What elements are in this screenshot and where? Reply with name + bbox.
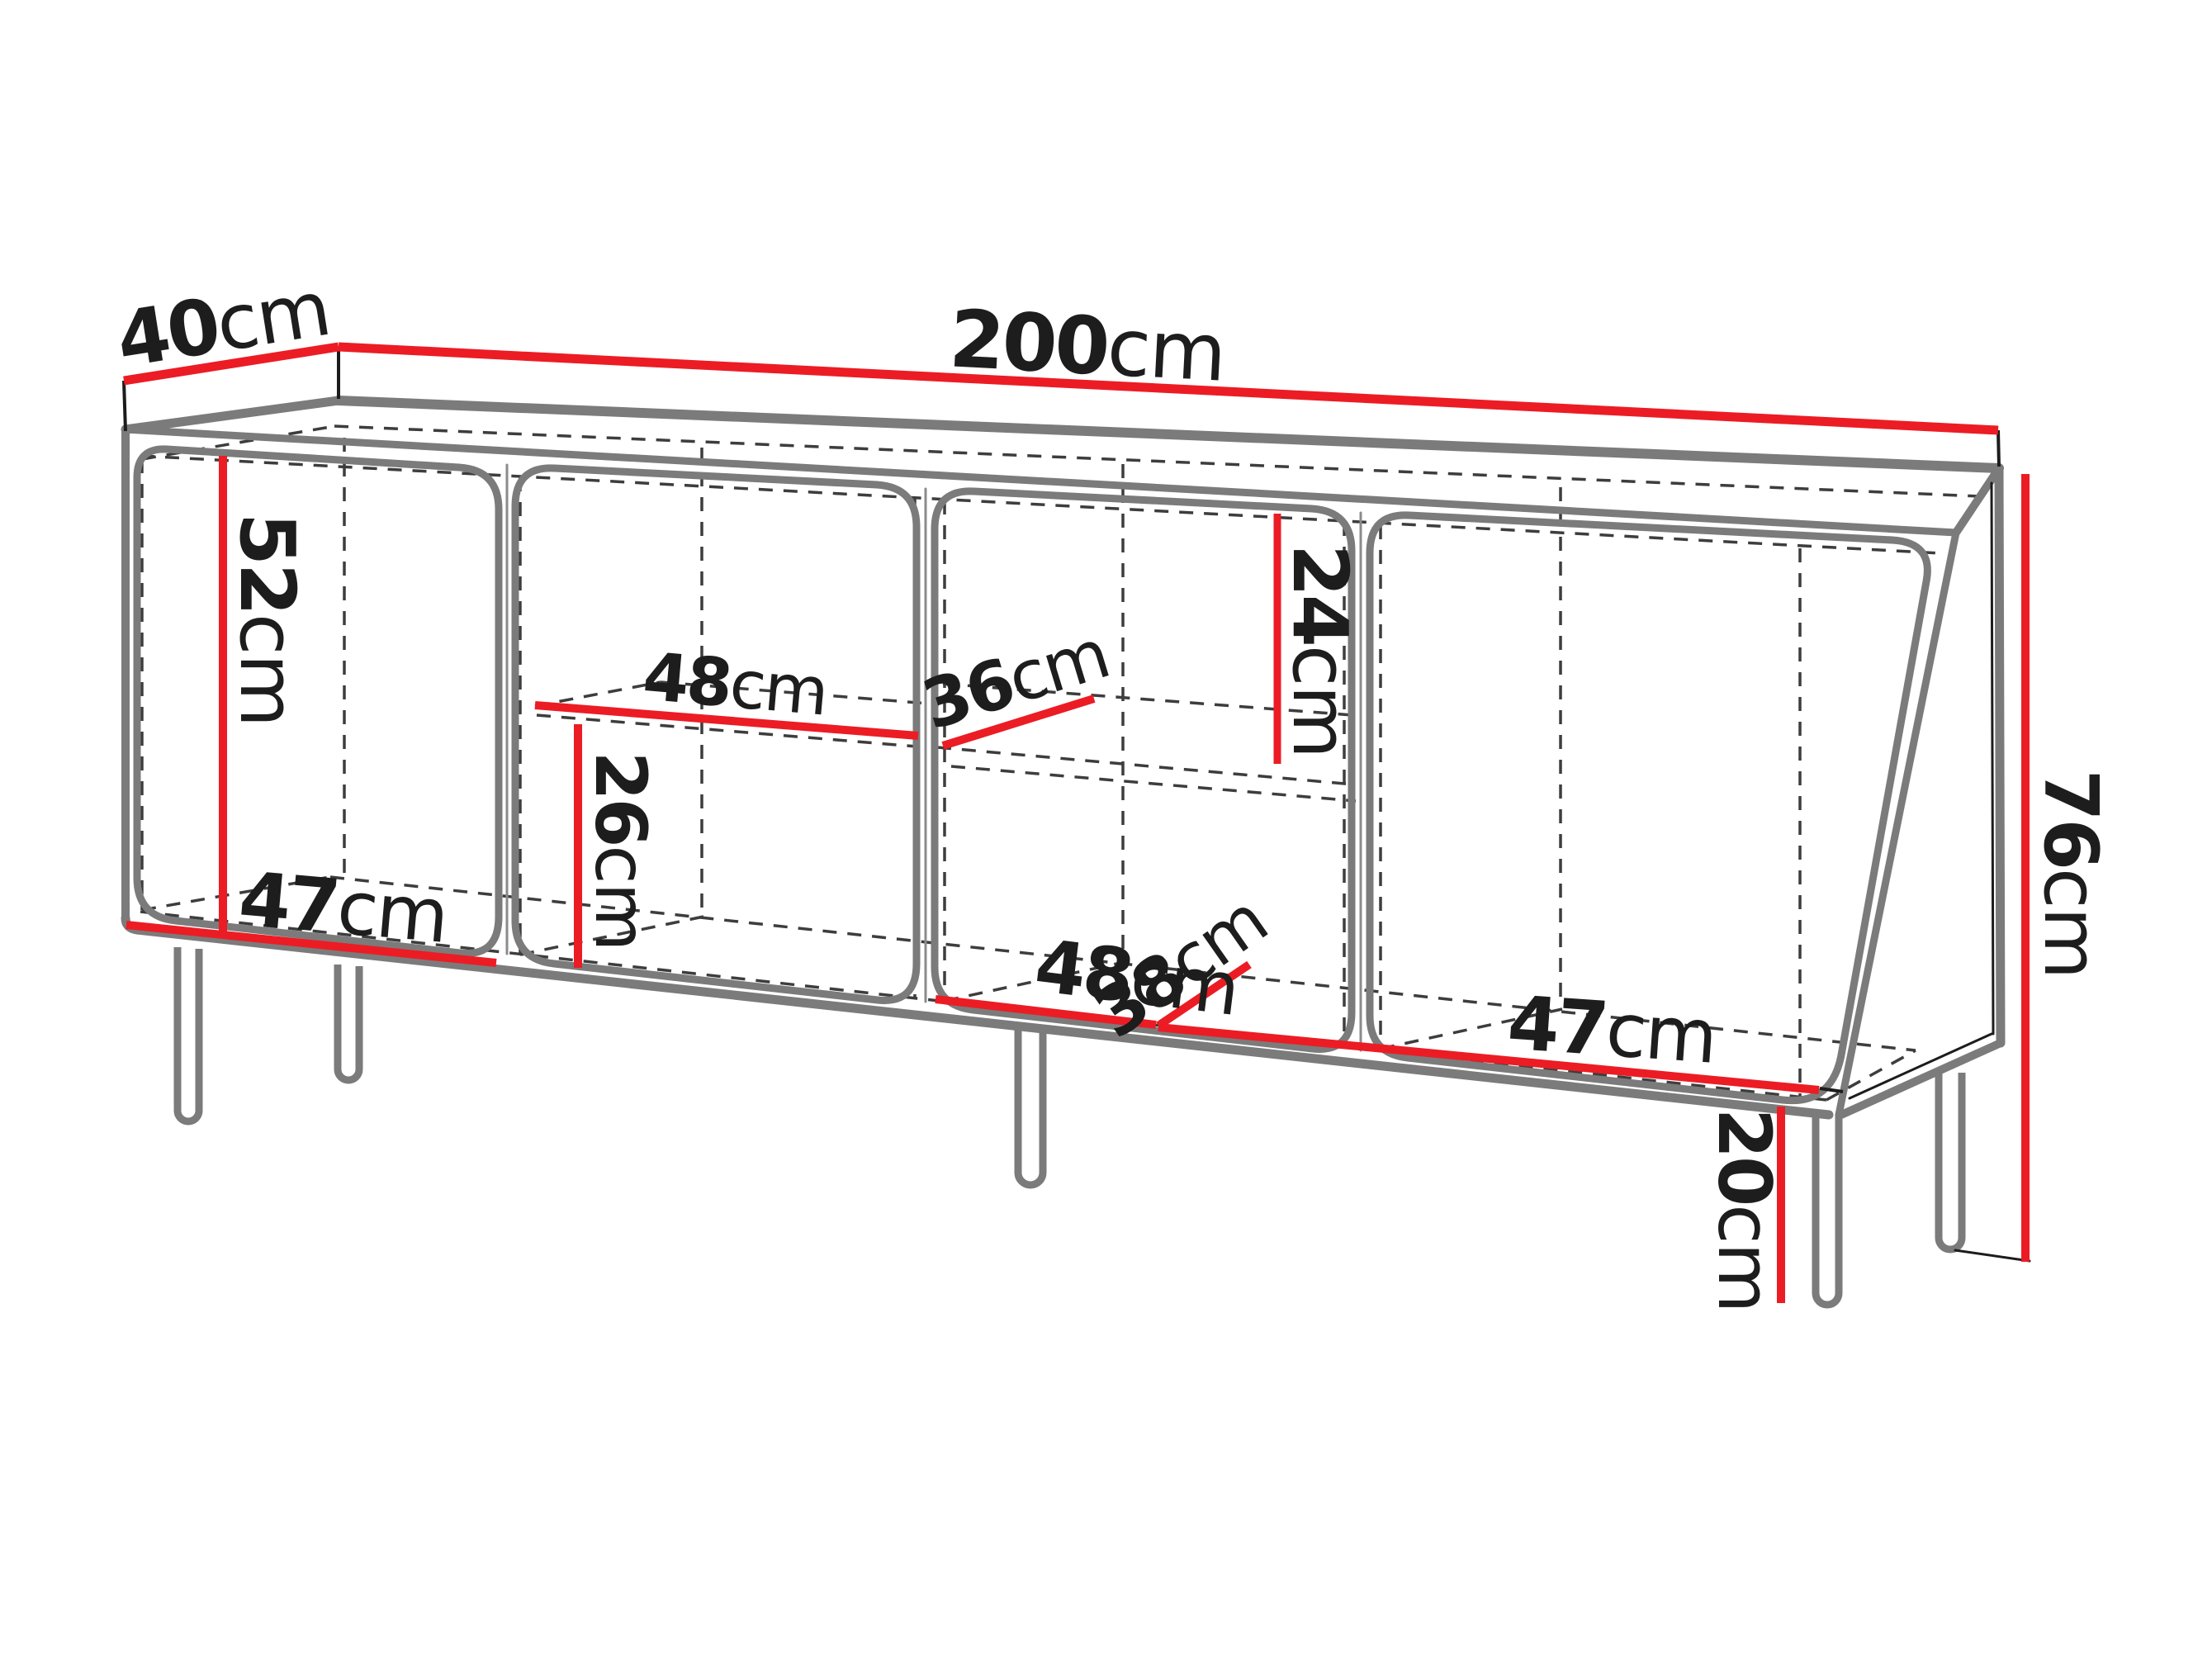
dimension-diagram: 40cm 200cm 52cm 47cm 48cm 36cm 24cm 26cm… xyxy=(0,0,2212,1659)
dimension-label-interior-width-left: 47cm xyxy=(235,856,451,960)
leg-front-middle xyxy=(1018,1030,1043,1185)
right-front-edge xyxy=(1839,533,1956,1115)
leg-back-left xyxy=(338,965,359,1080)
leg-front-left xyxy=(178,947,199,1121)
leg-front-right xyxy=(1816,1112,1839,1305)
top-front-edge xyxy=(126,429,1956,533)
top-left-side-edge xyxy=(126,401,339,429)
witness-tick-width-right xyxy=(1998,430,1999,467)
hidden-shelf-front-edge xyxy=(951,766,1356,801)
floor-witness-line xyxy=(1955,1250,2030,1261)
side-panel-bottom-edge xyxy=(1841,1043,2001,1115)
witness-tick-depth-left xyxy=(124,381,126,431)
dimension-label-above-shelf: 24cm xyxy=(1276,544,1364,757)
dimension-label-width: 200cm xyxy=(947,292,1227,399)
leg-back-right xyxy=(1939,1071,1962,1249)
dimension-label-below-shelf: 26cm xyxy=(579,751,661,950)
side-panel-inner-edge xyxy=(1850,1034,1992,1098)
dimension-label-leg-height: 20cm xyxy=(1702,1108,1787,1312)
dimension-label-depth: 40cm xyxy=(111,264,335,385)
dimension-label-interior-height: 52cm xyxy=(223,513,311,726)
dimension-label-shelf-width: 48cm xyxy=(640,638,831,731)
hidden-ceiling-front-edge xyxy=(140,456,1940,553)
dimension-label-total-height: 76cm xyxy=(2027,770,2114,978)
dimension-label-interior-width-right: 47cm xyxy=(1505,979,1719,1080)
diagram-canvas: 40cm 200cm 52cm 47cm 48cm 36cm 24cm 26cm… xyxy=(0,0,2212,1659)
side-panel-right-edge xyxy=(1999,468,2001,1043)
side-panel-inner-edge xyxy=(1992,483,1993,1034)
